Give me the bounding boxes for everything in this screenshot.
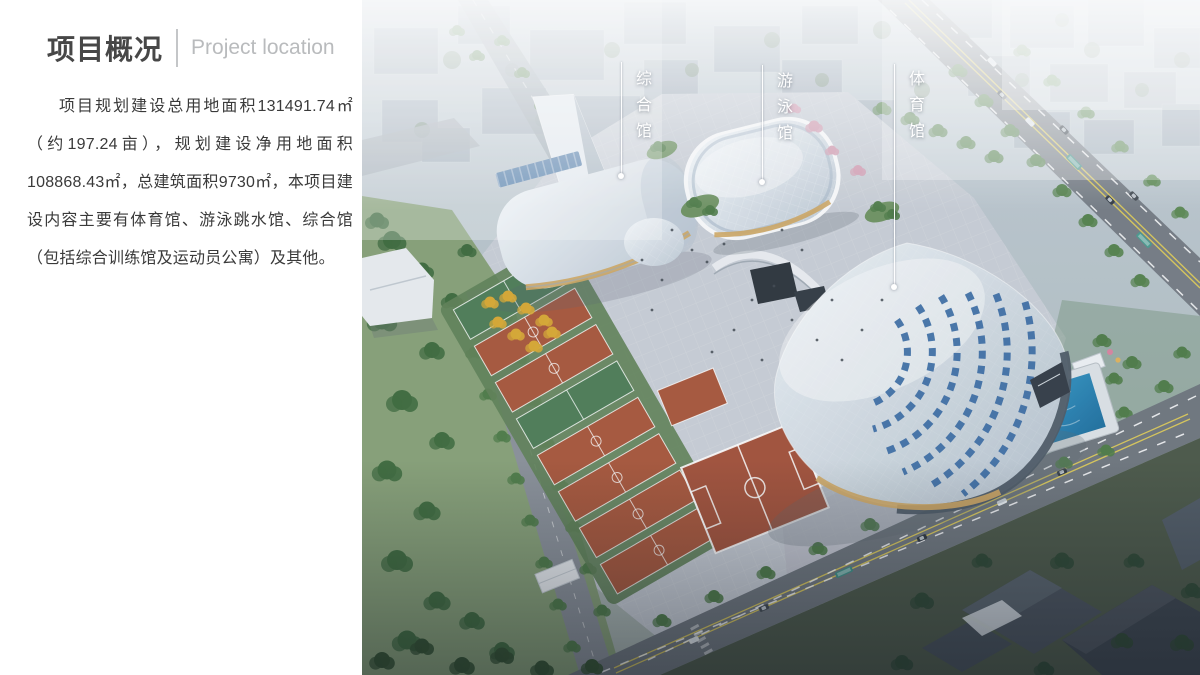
title-divider bbox=[176, 29, 178, 67]
callout-dot bbox=[618, 173, 624, 179]
page-subtitle-en: Project location bbox=[191, 36, 335, 60]
project-description: 项目规划建设总用地面积131491.74㎡（约197.24亩），规划建设净用地面… bbox=[27, 88, 353, 278]
callout-dot bbox=[891, 284, 897, 290]
info-panel: 项目概况 Project location 项目规划建设总用地面积131491.… bbox=[0, 0, 362, 675]
callout-line bbox=[621, 62, 622, 176]
page-title: 项目概况 bbox=[47, 28, 163, 68]
callout-label: 综合馆 bbox=[629, 70, 653, 148]
slide: 项目概况 Project location 项目规划建设总用地面积131491.… bbox=[0, 0, 1200, 675]
callout-label: 体育馆 bbox=[902, 70, 926, 148]
callout-label: 游泳馆 bbox=[770, 72, 794, 150]
callout-line bbox=[762, 65, 763, 182]
aerial-render: 综合馆 游泳馆 体育馆 bbox=[362, 0, 1200, 675]
callout-line bbox=[894, 64, 895, 287]
callout-dot bbox=[759, 179, 765, 185]
title-block: 项目概况 Project location bbox=[47, 28, 362, 68]
